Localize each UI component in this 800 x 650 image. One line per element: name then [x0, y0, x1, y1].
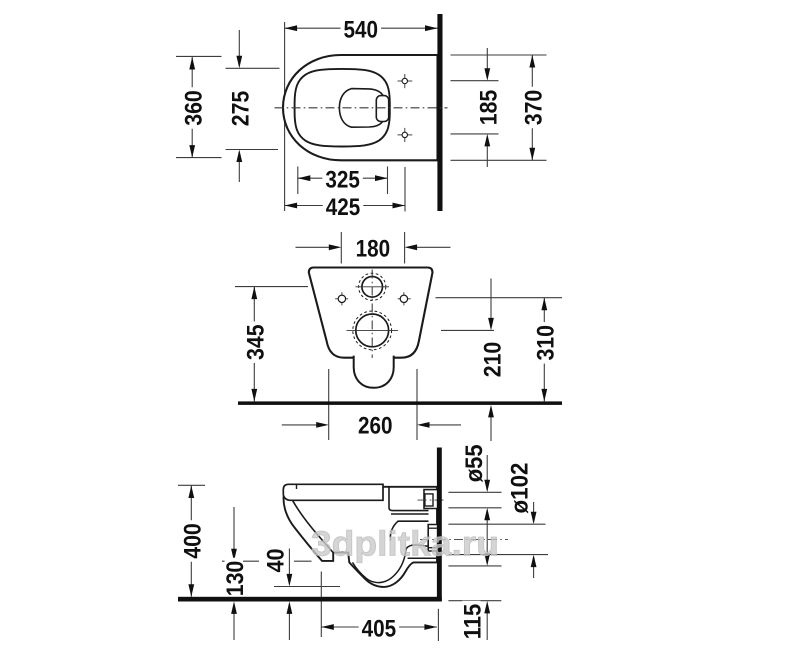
svg-text:405: 405	[362, 615, 397, 642]
svg-text:345: 345	[243, 324, 270, 360]
svg-text:180: 180	[356, 236, 391, 263]
svg-text:400: 400	[180, 523, 207, 559]
svg-text:275: 275	[228, 91, 255, 127]
svg-text:540: 540	[344, 17, 379, 44]
svg-text:360: 360	[181, 90, 208, 126]
svg-text:115: 115	[460, 604, 487, 640]
svg-text:3dplitka.ru: 3dplitka.ru	[311, 525, 499, 564]
svg-text:310: 310	[533, 325, 560, 361]
svg-text:185: 185	[476, 90, 503, 126]
svg-text:130: 130	[222, 561, 249, 597]
svg-text:425: 425	[326, 194, 361, 221]
svg-text:210: 210	[479, 342, 506, 378]
svg-text:325: 325	[325, 167, 360, 194]
svg-text:ø102: ø102	[506, 463, 533, 514]
svg-text:260: 260	[358, 413, 393, 440]
svg-text:ø55: ø55	[461, 444, 488, 482]
svg-text:40: 40	[262, 549, 289, 573]
svg-text:370: 370	[521, 90, 548, 126]
